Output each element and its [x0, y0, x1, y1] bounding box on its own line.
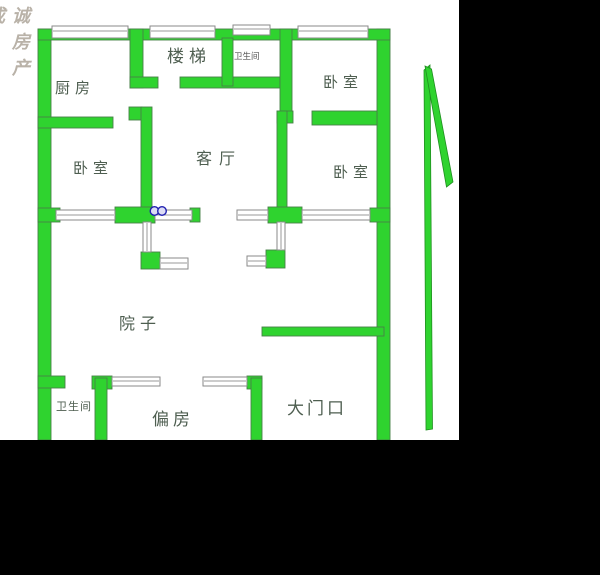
kitchen-bottom-wall [38, 117, 113, 128]
watermark-text: 诚 房 产 [12, 2, 41, 80]
north-arrow-icon [424, 65, 453, 430]
window-stairs-top [150, 26, 215, 38]
room-label-side-room: 偏房 [152, 411, 194, 430]
window-kitchen-top [52, 26, 128, 38]
room-label-bath-bottom: 卫生间 [56, 401, 92, 413]
room-label-bath-small: 卫生间 [234, 53, 260, 62]
bath-small-left-wall [222, 38, 233, 86]
room-label-yard: 院子 [119, 315, 161, 333]
room-label-bedroom-mid-right: 卧室 [333, 164, 373, 181]
living-left-wall-hook [129, 107, 142, 120]
living-left-wall [141, 107, 152, 217]
exterior-wall-right [377, 29, 390, 440]
room-label-bedroom-top-right: 卧室 [323, 74, 363, 91]
bedroom-tr-left-wall [280, 29, 292, 121]
floorplan-photo-page: { "watermark": { "partial": "成", "text":… [0, 0, 600, 575]
entrance-top-wall [262, 327, 384, 336]
floorplan-drawing [0, 0, 459, 440]
watermark-clipped-char: 成 [0, 2, 5, 28]
window-bath-small-top [233, 25, 270, 35]
sideroom-right-wall [251, 378, 262, 440]
room-label-main-entrance: 大门口 [287, 400, 347, 419]
porch-right-corner [266, 250, 285, 268]
bath-bottom-right-wall [95, 378, 107, 440]
south-band-block-5 [370, 208, 390, 222]
south-band-block-2 [115, 207, 155, 223]
kitchen-wall-foot [130, 77, 158, 88]
room-label-kitchen: 厨房 [55, 80, 95, 97]
living-right-wall [277, 111, 287, 217]
bedroom-tr-bottom-wall [312, 111, 377, 125]
black-letterbox-bottom [0, 440, 600, 575]
fixture-blue-icon [150, 207, 166, 216]
room-label-bedroom-mid-left: 卧室 [73, 160, 113, 177]
porch-left-corner [141, 252, 160, 269]
floorplan-image: 成 诚 房 产 厨房 楼梯 卫生间 卧室 卧室 客厅 卧室 院子 卫生间 偏房 … [0, 0, 459, 440]
window-bedroom-tr-top [298, 26, 368, 38]
bottom-wall-foot-left [38, 376, 65, 388]
room-label-stairs: 楼梯 [167, 48, 211, 67]
south-band-block-4 [268, 207, 302, 223]
room-label-living-room: 客厅 [196, 150, 242, 168]
